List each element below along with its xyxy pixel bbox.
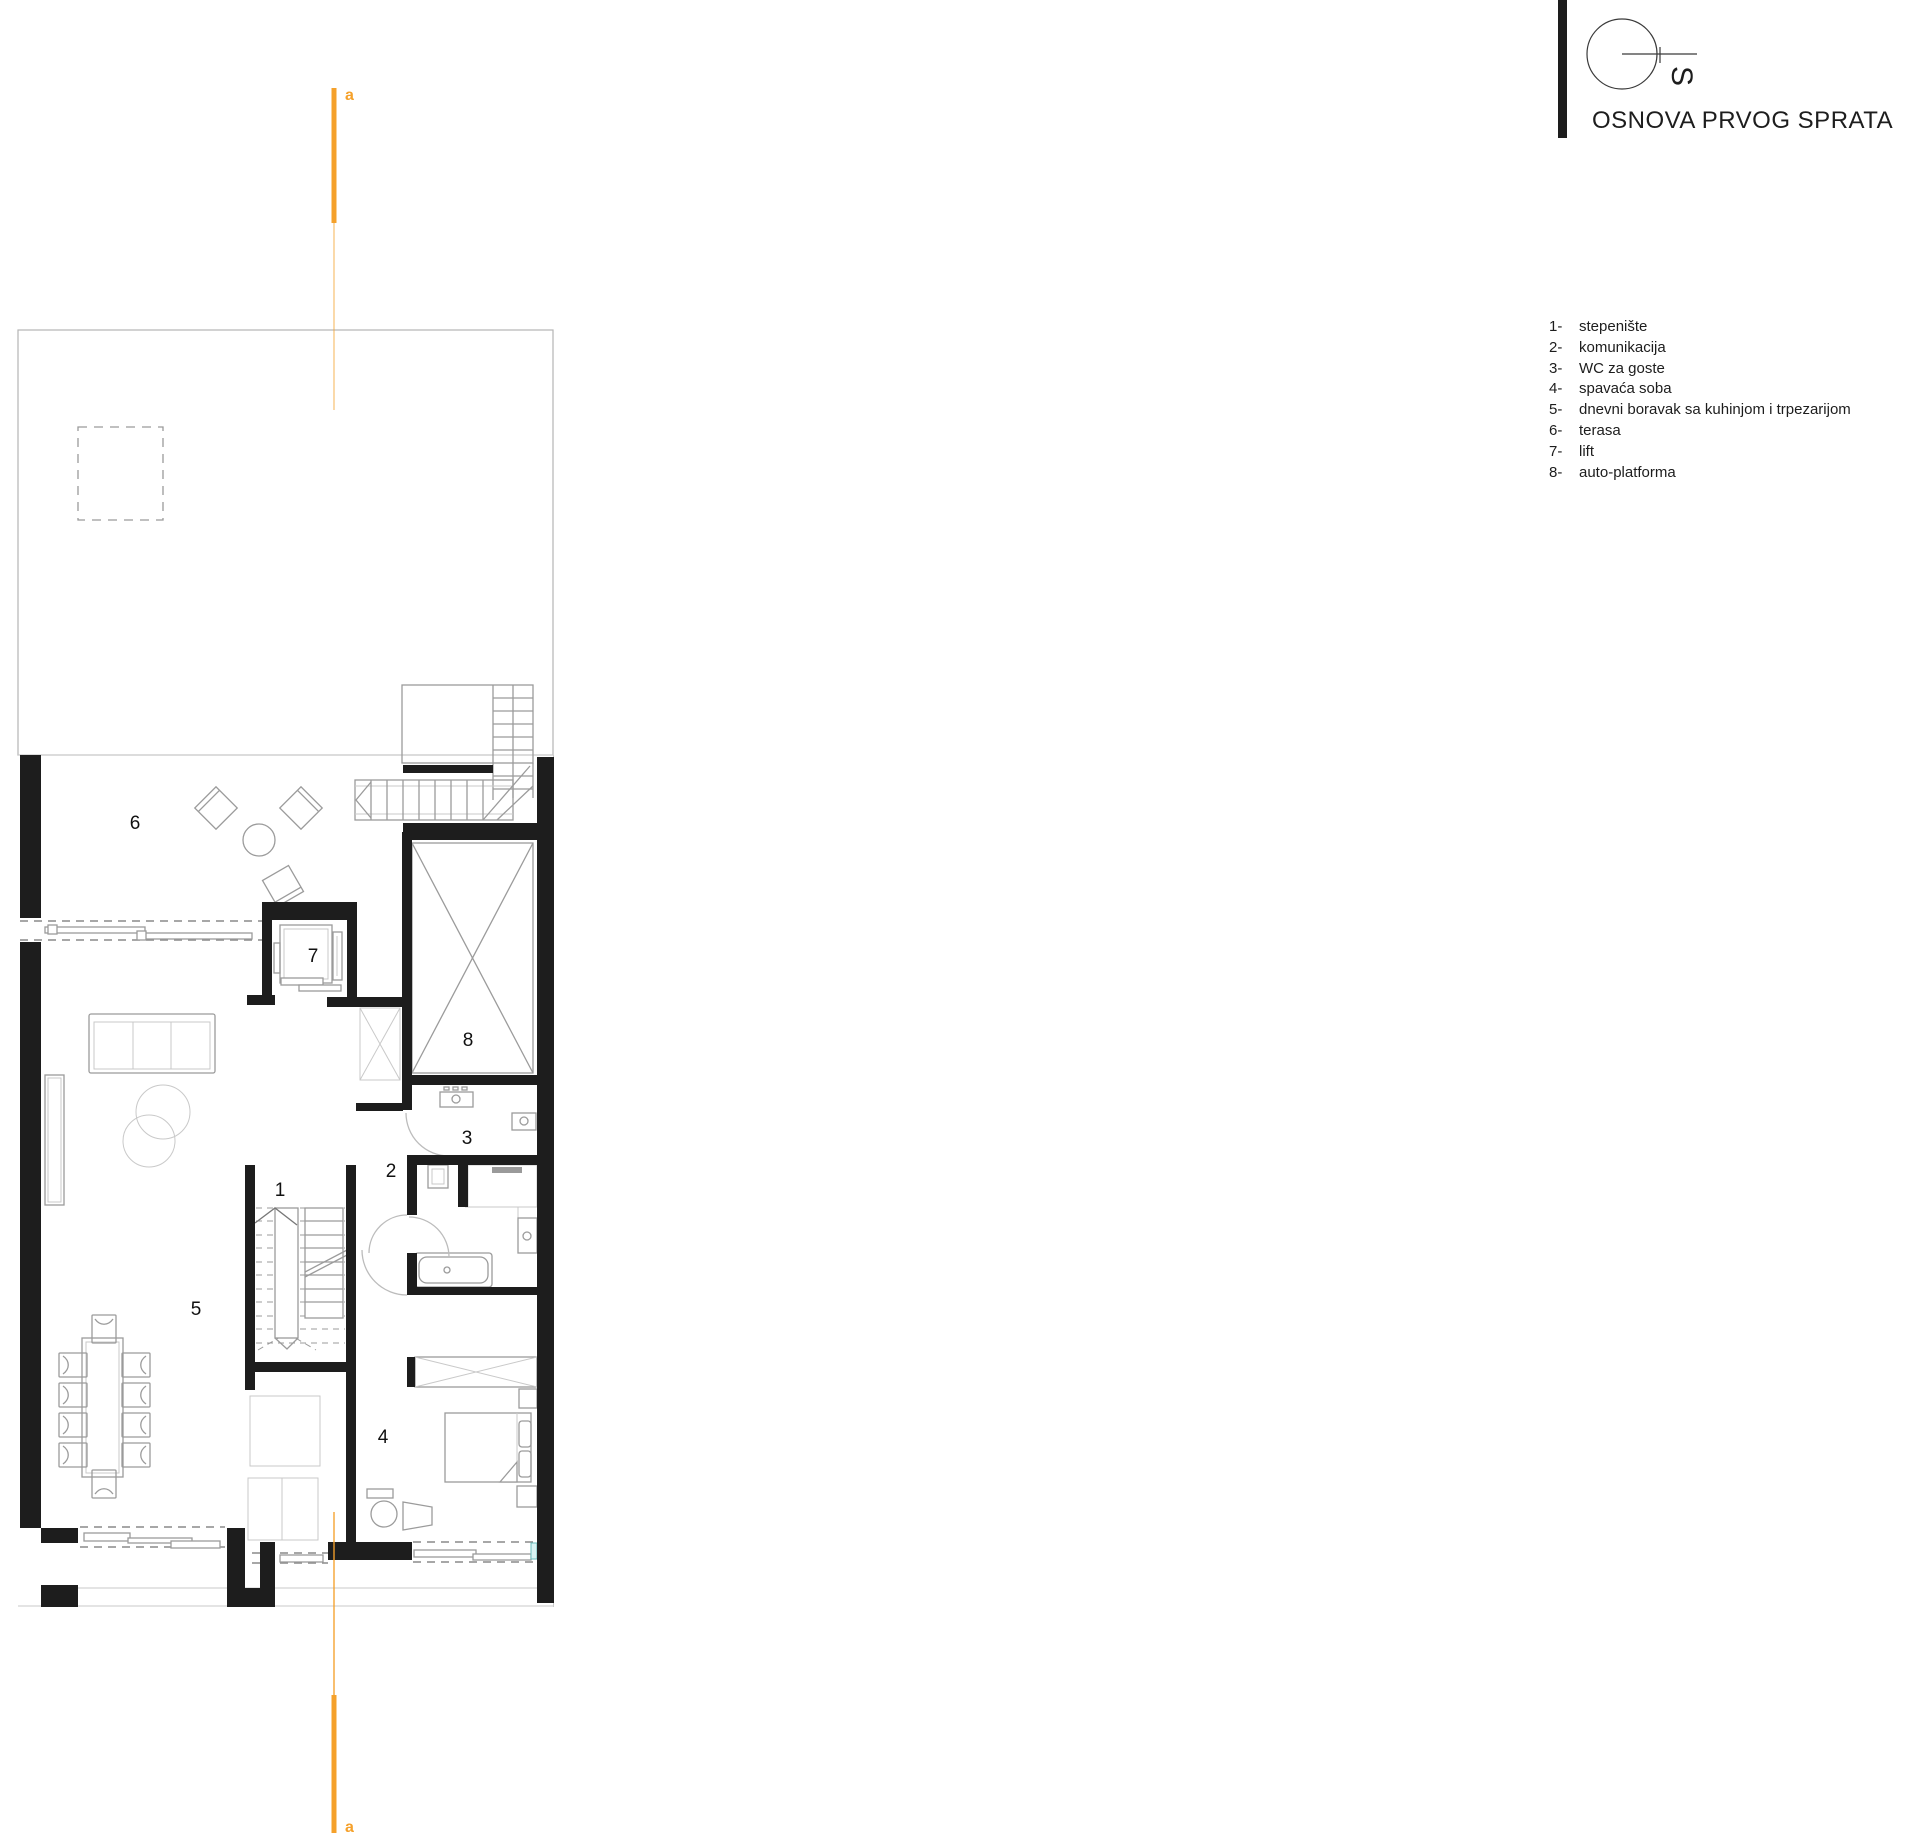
legend-num: 7- <box>1549 442 1579 463</box>
legend-label: WC za goste <box>1579 359 1665 380</box>
corridor-closet-cross <box>360 1008 400 1080</box>
bottom-window-left <box>80 1527 225 1548</box>
terrace-outline <box>18 330 554 1607</box>
legend-num: 5- <box>1549 400 1579 421</box>
room-label-4: 4 <box>378 1427 389 1448</box>
bathtub-icon <box>415 1253 492 1287</box>
vanity-icon <box>465 1207 537 1253</box>
dining-set <box>59 1315 150 1498</box>
legend-row: 1- stepenište <box>1549 317 1851 338</box>
exterior-stair <box>355 685 533 820</box>
page-title: OSNOVA PRVOG SPRATA <box>1592 107 1893 135</box>
shower-niche <box>468 1165 537 1207</box>
wall-basin-icon <box>512 1113 536 1130</box>
logo-letter: S <box>1665 66 1698 86</box>
legend-row: 3- WC za goste <box>1549 359 1851 380</box>
wc-basin-counter <box>440 1087 473 1107</box>
legend-num: 3- <box>1549 359 1579 380</box>
toilet-icon <box>428 1165 448 1188</box>
wardrobe-cross <box>415 1357 537 1387</box>
room-label-2: 2 <box>386 1161 397 1182</box>
legend-row: 7- lift <box>1549 442 1851 463</box>
room-label-5: 5 <box>191 1299 202 1320</box>
legend-row: 4- spavaća soba <box>1549 379 1851 400</box>
coffee-tables-icon <box>123 1085 190 1167</box>
room-label-3: 3 <box>462 1128 473 1149</box>
door-arcs <box>362 1113 449 1295</box>
nightstand-bottom <box>517 1486 537 1507</box>
floor-plan-drawing: 1 2 3 4 5 6 7 8 a a <box>0 0 1920 1842</box>
legend-num: 2- <box>1549 338 1579 359</box>
understair-closets <box>248 1396 320 1540</box>
logo-bar <box>1558 0 1567 138</box>
bottom-window-right <box>413 1542 537 1562</box>
legend-num: 4- <box>1549 379 1579 400</box>
sofa-icon <box>89 1014 215 1073</box>
terrace-lounge-set <box>195 787 322 907</box>
legend-label: dnevni boravak sa kuhinjom i trpezarijom <box>1579 400 1851 421</box>
legend-row: 6- terasa <box>1549 421 1851 442</box>
legend-label: spavaća soba <box>1579 379 1672 400</box>
room-label-7: 7 <box>308 946 319 967</box>
main-stair <box>255 1208 349 1350</box>
bed-icon <box>445 1413 531 1482</box>
walls <box>20 755 554 1607</box>
legend-num: 1- <box>1549 317 1579 338</box>
legend-row: 5- dnevni boravak sa kuhinjom i trpezari… <box>1549 400 1851 421</box>
architect-logo: S <box>1585 14 1715 104</box>
room-label-8: 8 <box>463 1030 474 1051</box>
legend-num: 8- <box>1549 463 1579 484</box>
legend: 1- stepenište 2- komunikacija 3- WC za g… <box>1549 317 1851 483</box>
section-label-bottom: a <box>345 1819 354 1836</box>
skylight-dashed-square <box>78 427 163 520</box>
legend-label: stepenište <box>1579 317 1647 338</box>
nightstand-top <box>519 1389 537 1408</box>
bedroom-seating <box>367 1489 432 1530</box>
legend-label: lift <box>1579 442 1594 463</box>
terrace-sliding-door <box>20 921 262 940</box>
section-label-top: a <box>345 87 354 104</box>
legend-row: 8- auto-platforma <box>1549 463 1851 484</box>
page: { "title": "OSNOVA PRVOG SPRATA", "logo"… <box>0 0 1920 1842</box>
round-table-icon <box>243 824 275 856</box>
room-label-1: 1 <box>275 1180 286 1201</box>
legend-num: 6- <box>1549 421 1579 442</box>
legend-row: 2- komunikacija <box>1549 338 1851 359</box>
room-label-6: 6 <box>130 813 141 834</box>
kitchen-counter <box>45 1075 64 1205</box>
legend-label: komunikacija <box>1579 338 1666 359</box>
legend-label: terasa <box>1579 421 1621 442</box>
legend-label: auto-platforma <box>1579 463 1676 484</box>
